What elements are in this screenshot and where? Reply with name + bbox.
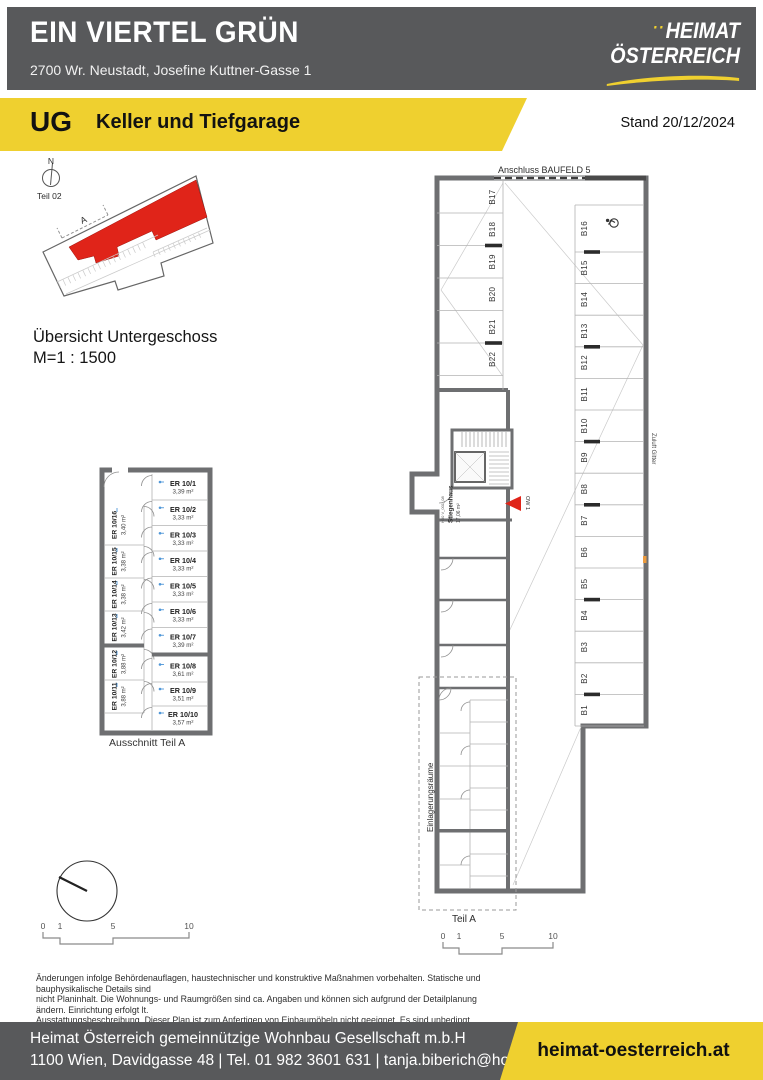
orientation-circle-icon [50, 856, 126, 928]
room-area: 3,39 m² [173, 489, 194, 496]
stairwell-name: Stiegenhaus [448, 485, 455, 523]
room-area: 3,38 m² [122, 551, 128, 571]
air-inlet-label: Zuluft Gitter [650, 433, 656, 464]
room-id: ER 10/2 [170, 505, 196, 514]
stall-label: B9 [580, 452, 589, 463]
stall-label: B18 [488, 221, 497, 236]
plan-document-page: EIN VIERTEL GRÜN 2700 Wr. Neustadt, Jose… [0, 0, 763, 1080]
room-id: ER 10/6 [170, 607, 196, 616]
room-id: ER 10/15 [112, 547, 119, 576]
svg-text:5: 5 [500, 931, 505, 941]
overview-caption: Übersicht Untergeschoss M=1 : 1500 [33, 327, 217, 369]
room-area: 3,33 m² [173, 616, 194, 623]
svg-text:0: 0 [441, 931, 446, 941]
stall-label: B10 [580, 418, 589, 433]
level-code: UG [30, 106, 72, 138]
room-area: 3,57 m² [173, 720, 194, 727]
stall-label: B4 [580, 610, 589, 621]
brand-logo: ··HEIMAT ÖSTERREICH [605, 19, 740, 90]
stall-label: B14 [580, 292, 589, 307]
room-id: ER 10/9 [170, 686, 196, 695]
logo-line2: ÖSTERREICH [605, 44, 740, 67]
logo-swoosh-icon [605, 73, 740, 86]
storage-zone-label: Einlagerungsräume [426, 762, 435, 832]
teil-a-label: Teil A [452, 914, 476, 925]
room-id: ER 10/1 [170, 479, 196, 488]
entrance-marker-label: OW 1 [524, 496, 530, 510]
garage-outline [412, 178, 646, 891]
stairwell-code: H30 V_001_08 [440, 496, 445, 523]
scale-bar-left: 0 1 5 10 [38, 920, 198, 948]
logo-line1: HEIMAT [666, 18, 740, 43]
room-area: 3,88 m² [122, 686, 128, 706]
footer-website-band: heimat-oesterreich.at [480, 1022, 763, 1080]
svg-text:5: 5 [111, 921, 116, 931]
footer-website: heimat-oesterreich.at [492, 1040, 763, 1062]
stall-label: B13 [580, 323, 589, 338]
section-a-label: A [79, 214, 89, 226]
stall-label: B15 [580, 260, 589, 275]
project-title: EIN VIERTEL GRÜN [30, 16, 299, 50]
overview-part-label: Teil 02 [37, 191, 62, 201]
stall-label: B19 [488, 254, 497, 269]
room-id: ER 10/14 [112, 580, 119, 609]
stall-label: B22 [488, 351, 497, 366]
detail-caption: Ausschnitt Teil A [109, 737, 185, 749]
svg-text:10: 10 [184, 921, 194, 931]
stairwell-area: 17,06 m² [456, 503, 462, 523]
footer-company: Heimat Österreich gemeinnützige Wohnbau … [30, 1030, 466, 1048]
room-id: ER 10/4 [170, 556, 196, 565]
vent-marker [643, 556, 647, 563]
level-title: Keller und Tiefgarage [96, 111, 300, 134]
room-area: 3,33 m² [173, 514, 194, 521]
stall-label: B21 [488, 319, 497, 334]
svg-text:1: 1 [58, 921, 63, 931]
room-id: ER 10/3 [170, 530, 196, 539]
stall-label: B20 [488, 286, 497, 301]
room-id: ER 10/10 [168, 710, 198, 719]
stall-label: B8 [580, 484, 589, 495]
plan-date: Stand 20/12/2024 [621, 115, 736, 131]
stall-label: B11 [580, 387, 589, 402]
svg-text:0: 0 [41, 921, 46, 931]
stall-label: B6 [580, 547, 589, 558]
room-area: 3,61 m² [173, 671, 194, 678]
room-area: 3,88 m² [122, 654, 128, 674]
detail-plan: ER 10/163,40 m²ER 10/153,38 m²ER 10/143,… [96, 460, 222, 756]
room-area: 3,33 m² [173, 565, 194, 572]
room-area: 3,33 m² [173, 540, 194, 547]
stall-label: B7 [580, 515, 589, 526]
stall-label: B1 [580, 705, 589, 716]
stall-label: B5 [580, 578, 589, 589]
stall-label: B16 [580, 221, 589, 236]
room-id: ER 10/5 [170, 581, 196, 590]
room-id: ER 10/7 [170, 632, 196, 641]
room-id: ER 10/8 [170, 662, 196, 671]
svg-text:10: 10 [548, 931, 558, 941]
logo-dots-icon: ·· [653, 18, 665, 37]
header-bar: EIN VIERTEL GRÜN 2700 Wr. Neustadt, Jose… [7, 7, 756, 90]
footer-contact: 1100 Wien, Davidgasse 48 | Tel. 01 982 3… [30, 1052, 535, 1070]
project-address: 2700 Wr. Neustadt, Josefine Kuttner-Gass… [30, 62, 311, 78]
baufeld-connection-label: Anschluss BAUFELD 5 [498, 165, 591, 175]
main-floor-plan: Anschluss BAUFELD 5 H30 V_001_08 Stiegen… [405, 162, 667, 960]
stall-label: B2 [580, 673, 589, 684]
room-id: ER 10/16 [112, 511, 119, 540]
room-id: ER 10/12 [112, 650, 119, 679]
room-id: ER 10/11 [112, 682, 119, 710]
compass-north-label: N [48, 156, 54, 166]
room-id: ER 10/13 [112, 613, 119, 642]
room-area: 3,40 m² [122, 515, 128, 535]
room-area: 3,39 m² [173, 642, 194, 649]
stall-label: B12 [580, 355, 589, 370]
room-area: 3,38 m² [122, 584, 128, 604]
room-area: 3,51 m² [173, 696, 194, 703]
room-area: 3,33 m² [173, 591, 194, 598]
svg-text:1: 1 [457, 931, 462, 941]
scale-bar-right: 0 1 5 10 [432, 930, 562, 958]
stall-label: B17 [488, 189, 497, 204]
stall-label: B3 [580, 642, 589, 653]
room-area: 3,42 m² [122, 617, 128, 637]
